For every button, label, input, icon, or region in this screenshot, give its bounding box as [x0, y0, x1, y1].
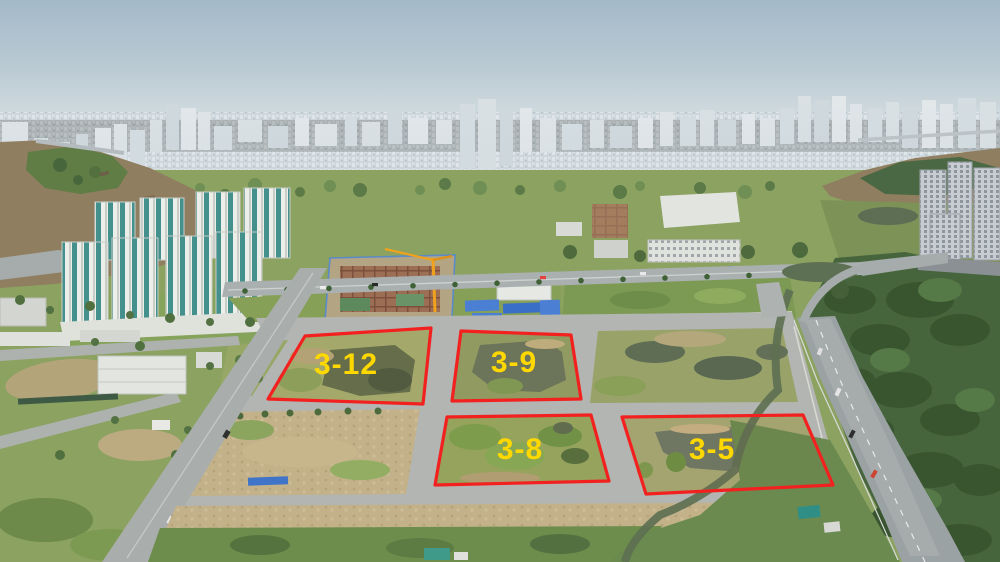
horizon-haze	[0, 92, 1000, 180]
warehouse	[98, 356, 186, 394]
industrial-building	[80, 330, 140, 342]
plot-label-3-12: 3-12	[314, 348, 378, 381]
plot-annotation-3-9: 3-9	[452, 331, 581, 401]
industrial-building	[0, 332, 70, 346]
white-hut	[454, 552, 468, 560]
small-hut	[152, 420, 170, 430]
plot-label-3-5: 3-5	[689, 433, 735, 466]
plot-label-3-9: 3-9	[491, 346, 537, 379]
plot-annotation-3-8: 3-8	[435, 415, 609, 485]
plot-annotation-3-5: 3-5	[622, 415, 833, 494]
teal-shack	[797, 505, 820, 519]
blue-dumpsters	[248, 476, 288, 485]
bottom-green-strip	[148, 526, 662, 562]
plot-label-3-8: 3-8	[497, 433, 543, 466]
white-shack	[824, 521, 841, 533]
aerial-photo: 3-123-93-83-5	[0, 0, 1000, 562]
parcel-marsh-ne	[590, 328, 798, 403]
teal-roof-hut	[424, 548, 450, 560]
